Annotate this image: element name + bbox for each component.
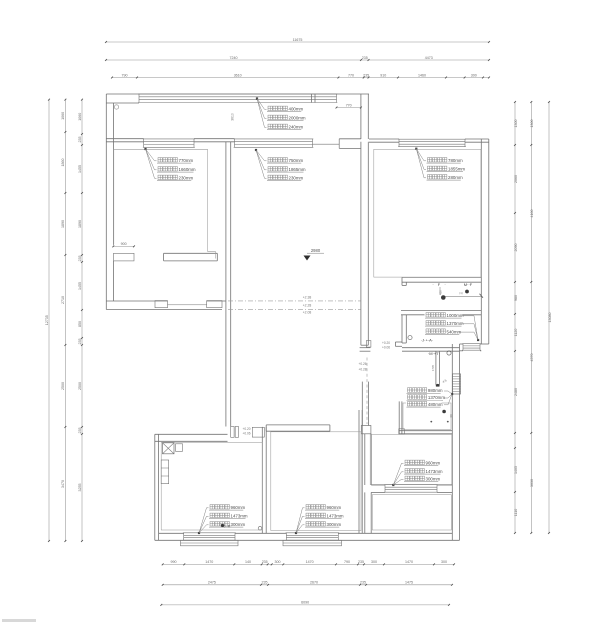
svg-text:+2.38: +2.38 xyxy=(303,295,312,299)
svg-text:2090: 2090 xyxy=(514,244,518,252)
svg-text:770: 770 xyxy=(348,73,354,77)
svg-text:300: 300 xyxy=(441,560,447,564)
svg-text:(1): (1) xyxy=(459,291,462,295)
svg-text:300mm: 300mm xyxy=(426,477,441,482)
svg-text:1475: 1475 xyxy=(405,580,413,584)
svg-text:770: 770 xyxy=(346,103,352,107)
svg-text:·J·+·A·: ·J·+·A· xyxy=(421,338,433,343)
svg-text:240mm: 240mm xyxy=(289,125,304,130)
svg-text:235: 235 xyxy=(362,56,368,60)
svg-text:1855mm: 1855mm xyxy=(448,167,465,172)
svg-text:+0.06: +0.06 xyxy=(242,432,250,436)
svg-text:3255: 3255 xyxy=(78,484,82,492)
svg-text:980mm: 980mm xyxy=(428,388,443,393)
svg-text:400mm: 400mm xyxy=(289,107,304,112)
svg-text:2500: 2500 xyxy=(61,382,65,390)
svg-text:1705: 1705 xyxy=(431,364,435,371)
svg-text:960mm: 960mm xyxy=(327,505,342,510)
svg-text:1473mm: 1473mm xyxy=(426,469,443,474)
svg-text:300mm: 300mm xyxy=(231,522,246,527)
svg-text:750mm: 750mm xyxy=(289,158,304,163)
svg-text:300: 300 xyxy=(371,560,377,564)
svg-text:2670: 2670 xyxy=(310,580,318,584)
svg-text:+0.20: +0.20 xyxy=(242,427,250,431)
svg-text:2475: 2475 xyxy=(208,580,216,584)
svg-text:1370mm: 1370mm xyxy=(428,395,445,400)
svg-text:4160: 4160 xyxy=(530,210,534,218)
svg-text:·: · xyxy=(432,282,433,287)
svg-text:2710: 2710 xyxy=(61,296,65,304)
svg-text:1120: 1120 xyxy=(514,329,518,337)
svg-text:+2.08: +2.08 xyxy=(303,311,312,315)
svg-text:235: 235 xyxy=(363,73,369,77)
svg-text:·: · xyxy=(444,282,445,287)
svg-text:3030: 3030 xyxy=(530,479,534,487)
svg-text:+2.28: +2.28 xyxy=(303,304,312,308)
svg-text:280mm: 280mm xyxy=(448,175,463,180)
svg-text:235: 235 xyxy=(78,339,82,345)
svg-text:1300: 1300 xyxy=(514,120,518,128)
svg-text:1405: 1405 xyxy=(514,466,518,474)
svg-text:540mm: 540mm xyxy=(447,329,462,334)
svg-text:1000mm: 1000mm xyxy=(447,313,464,318)
svg-text:7240: 7240 xyxy=(230,56,238,60)
svg-text:235: 235 xyxy=(358,560,364,564)
svg-text:4473: 4473 xyxy=(425,56,433,60)
svg-text:13080: 13080 xyxy=(548,313,552,323)
svg-text:1890: 1890 xyxy=(61,220,65,228)
svg-text:480mm: 480mm xyxy=(428,402,443,407)
svg-text:850: 850 xyxy=(78,321,82,327)
svg-text:1470: 1470 xyxy=(306,560,314,564)
svg-text:235: 235 xyxy=(78,256,82,262)
svg-text:960mm: 960mm xyxy=(231,505,246,510)
svg-text:140: 140 xyxy=(245,560,251,564)
svg-text:235: 235 xyxy=(78,137,82,143)
svg-text:1470: 1470 xyxy=(205,560,213,564)
svg-text:2480: 2480 xyxy=(514,388,518,396)
svg-text:990: 990 xyxy=(171,560,177,564)
svg-text:·M·+T·: ·M·+T· xyxy=(428,351,440,356)
svg-text:1660mm: 1660mm xyxy=(179,167,196,172)
svg-text:1110: 1110 xyxy=(514,509,518,516)
svg-text:235: 235 xyxy=(262,580,268,584)
svg-text:1470: 1470 xyxy=(405,560,413,564)
svg-text:420: 420 xyxy=(439,290,443,295)
svg-text:1370mm: 1370mm xyxy=(447,321,464,326)
svg-text:230mm: 230mm xyxy=(289,176,304,181)
svg-text:770mm: 770mm xyxy=(179,158,194,163)
svg-text:4X: 4X xyxy=(449,414,453,418)
svg-text:235: 235 xyxy=(262,560,268,564)
svg-text:2500: 2500 xyxy=(78,382,82,390)
svg-text:6090: 6090 xyxy=(301,601,309,605)
svg-text:2980: 2980 xyxy=(311,248,321,253)
svg-text:1455: 1455 xyxy=(78,165,82,173)
svg-text:1860: 1860 xyxy=(61,159,65,167)
svg-text:780mm: 780mm xyxy=(448,158,463,163)
svg-text:910: 910 xyxy=(380,73,386,77)
svg-text:230mm: 230mm xyxy=(179,176,194,181)
svg-text:M··F: M··F xyxy=(464,282,473,287)
svg-text:790: 790 xyxy=(122,73,128,77)
svg-text:2000mm: 2000mm xyxy=(289,116,306,121)
svg-text:3470: 3470 xyxy=(61,480,65,488)
svg-text:235: 235 xyxy=(360,580,366,584)
svg-text:235: 235 xyxy=(78,428,82,434)
svg-text:1060: 1060 xyxy=(78,113,82,121)
svg-text:300mm: 300mm xyxy=(327,522,342,527)
svg-text:1460: 1460 xyxy=(418,73,426,77)
svg-text:+0.20: +0.20 xyxy=(382,341,390,345)
svg-text:3610: 3610 xyxy=(231,113,235,121)
svg-text:12735: 12735 xyxy=(45,315,49,325)
svg-text:1473mm: 1473mm xyxy=(327,514,344,519)
svg-text:900: 900 xyxy=(121,242,127,246)
svg-text:790: 790 xyxy=(344,560,350,564)
svg-text:·J··R·: ·J··R· xyxy=(222,525,231,529)
svg-text:2060: 2060 xyxy=(514,175,518,183)
svg-text:+0.26: +0.26 xyxy=(358,362,366,366)
svg-text:960mm: 960mm xyxy=(426,461,441,466)
svg-text:11675: 11675 xyxy=(293,38,303,42)
svg-text:1890: 1890 xyxy=(78,220,82,228)
svg-text:1300: 1300 xyxy=(530,120,534,128)
svg-text:+0.28: +0.28 xyxy=(358,368,366,372)
svg-text:980: 980 xyxy=(514,295,518,301)
svg-text:1473mm: 1473mm xyxy=(231,514,248,519)
svg-text:300: 300 xyxy=(471,73,477,77)
svg-text:3610: 3610 xyxy=(234,73,242,77)
svg-text:4570: 4570 xyxy=(530,354,534,362)
svg-text:1865mm: 1865mm xyxy=(289,167,306,172)
svg-text:+0.06: +0.06 xyxy=(382,345,390,349)
svg-text:1060: 1060 xyxy=(61,112,65,120)
svg-text:300: 300 xyxy=(275,560,281,564)
svg-text:1455: 1455 xyxy=(78,282,82,290)
